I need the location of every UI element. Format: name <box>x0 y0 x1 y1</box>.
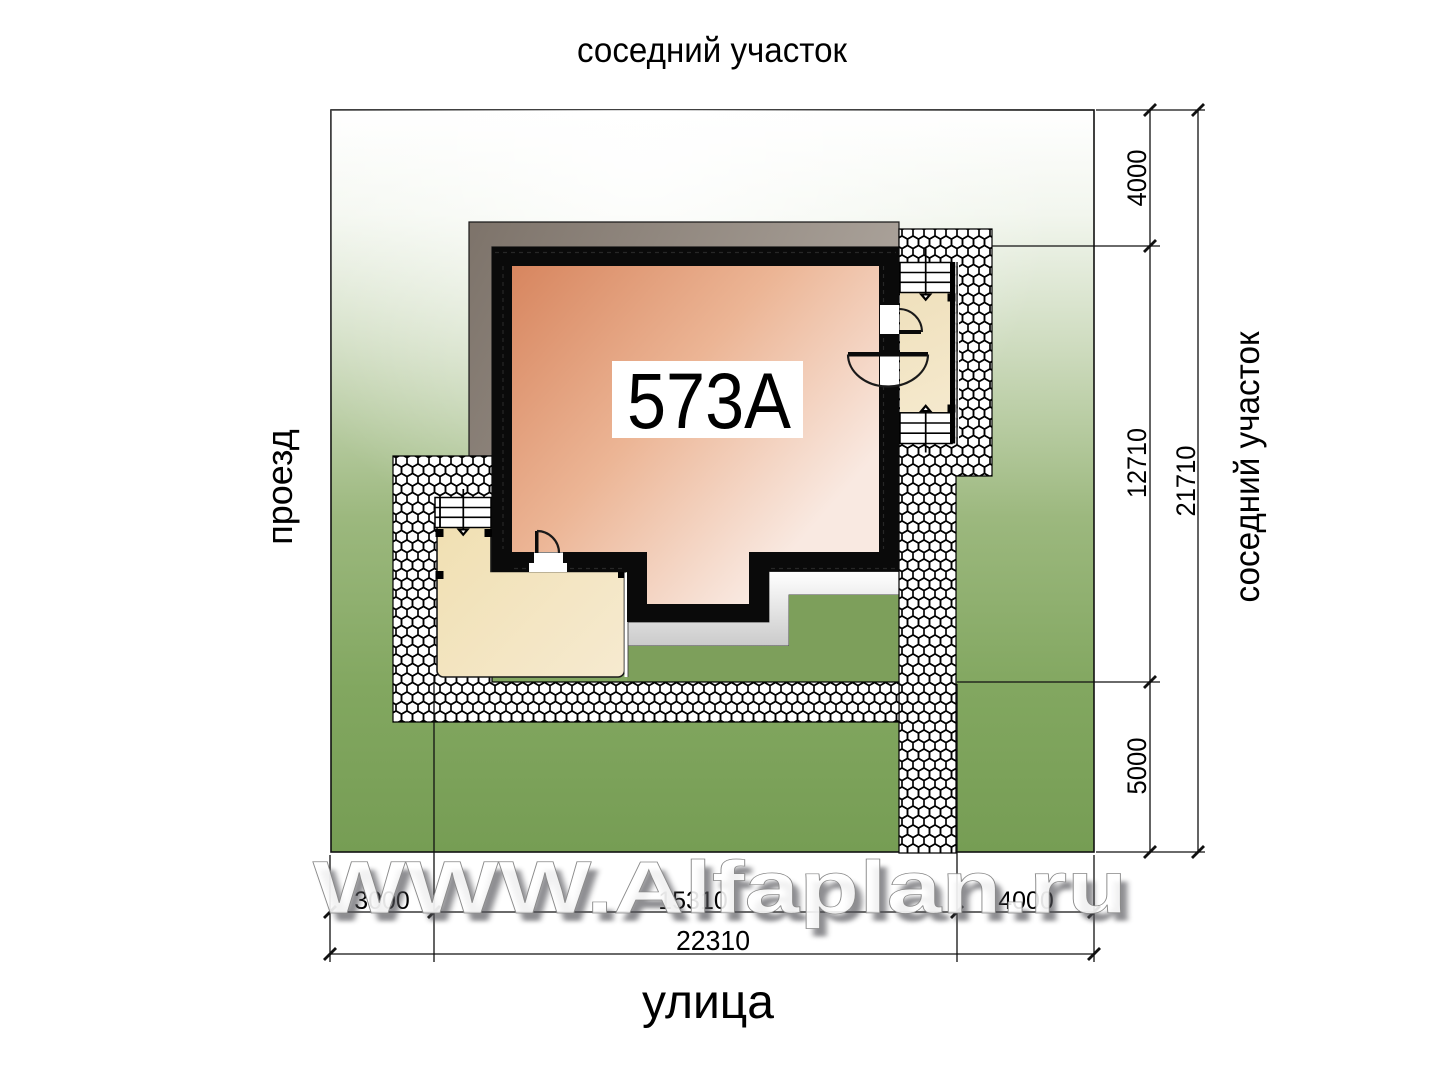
svg-text:4000: 4000 <box>1122 150 1152 207</box>
svg-text:573A: 573A <box>627 356 791 445</box>
svg-text:5000: 5000 <box>1122 738 1152 795</box>
svg-text:улица: улица <box>642 976 774 1029</box>
svg-text:12710: 12710 <box>1122 428 1152 498</box>
svg-text:соседний участок: соседний участок <box>1228 331 1267 603</box>
svg-text:соседний участок: соседний участок <box>577 31 848 70</box>
svg-text:проезд: проезд <box>259 429 300 545</box>
svg-text:WWW.Alfaplan.ru: WWW.Alfaplan.ru <box>313 847 1128 929</box>
svg-text:21710: 21710 <box>1171 446 1201 517</box>
